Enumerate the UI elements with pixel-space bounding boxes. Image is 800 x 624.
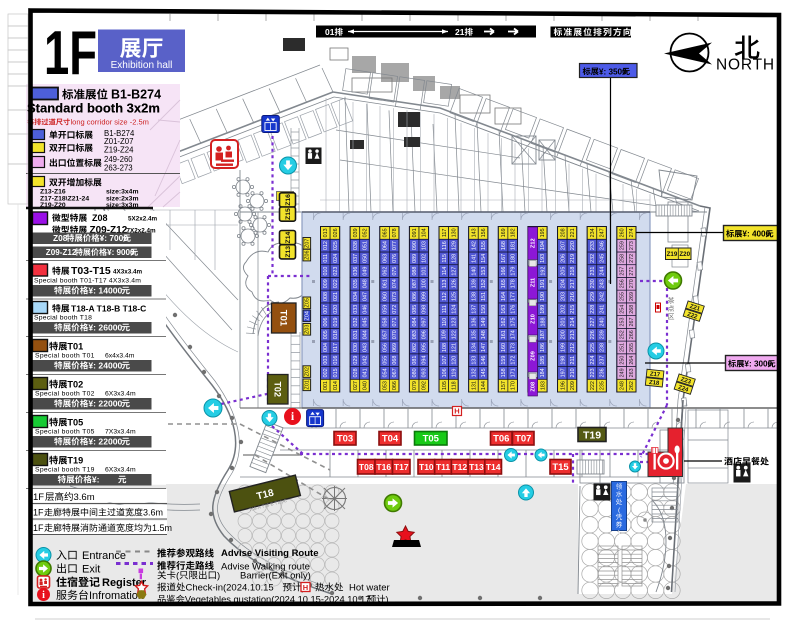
svg-text:¥: 14000: ¥: 14000 — [88, 286, 122, 296]
svg-text:026: 026 — [333, 228, 339, 237]
svg-text:056: 056 — [383, 343, 389, 352]
svg-text:246: 246 — [600, 241, 606, 250]
svg-text:161: 161 — [501, 330, 507, 339]
svg-text:224: 224 — [590, 356, 596, 365]
svg-text:119: 119 — [451, 369, 457, 378]
svg-text:228: 228 — [590, 305, 596, 314]
svg-text:096: 096 — [422, 330, 428, 339]
svg-text:¥: 22000: ¥: 22000 — [88, 399, 122, 409]
svg-text:Z19: Z19 — [667, 251, 678, 258]
svg-text:269: 269 — [629, 292, 635, 301]
svg-text:Infromation: Infromation — [89, 590, 144, 602]
svg-text:080: 080 — [412, 368, 418, 377]
svg-text:204: 204 — [560, 279, 566, 288]
svg-text:1F: 1F — [33, 523, 44, 533]
svg-text:071: 071 — [392, 317, 398, 326]
svg-text:252: 252 — [620, 330, 626, 339]
svg-text:028: 028 — [353, 368, 359, 377]
svg-text:057: 057 — [383, 330, 389, 339]
svg-text:241: 241 — [600, 305, 606, 314]
svg-text:256: 256 — [620, 279, 626, 288]
svg-text:Check-in(2024.10.15: Check-in(2024.10.15 — [186, 583, 274, 594]
svg-text:085: 085 — [412, 305, 418, 314]
svg-text:B1-B274: B1-B274 — [111, 88, 161, 102]
svg-text:045: 045 — [362, 317, 368, 326]
svg-text:168: 168 — [501, 241, 507, 250]
svg-text:123: 123 — [451, 317, 457, 326]
svg-text:035: 035 — [353, 279, 359, 288]
svg-text:068: 068 — [392, 356, 398, 365]
svg-text:138: 138 — [471, 292, 477, 301]
svg-text:090: 090 — [412, 241, 418, 250]
svg-text:029: 029 — [353, 356, 359, 365]
svg-text:207: 207 — [560, 241, 566, 250]
svg-text:144: 144 — [481, 381, 487, 390]
svg-text:225: 225 — [590, 343, 596, 352]
svg-text:249: 249 — [620, 368, 626, 377]
svg-text:149: 149 — [481, 317, 487, 326]
svg-text:172: 172 — [511, 356, 517, 365]
svg-text:065: 065 — [383, 228, 389, 237]
svg-text:076: 076 — [392, 254, 398, 263]
svg-text:274: 274 — [629, 228, 635, 237]
svg-text:262: 262 — [629, 381, 635, 390]
svg-text:191: 191 — [540, 279, 546, 288]
svg-text:188: 188 — [540, 317, 546, 326]
svg-text:271: 271 — [629, 267, 635, 276]
svg-text:178: 178 — [511, 279, 517, 288]
svg-text:231: 231 — [590, 267, 596, 276]
svg-text:21: 21 — [455, 27, 465, 37]
svg-text:1.5m: 1.5m — [152, 523, 172, 533]
svg-text:177: 177 — [511, 292, 517, 301]
svg-text:Z11: Z11 — [531, 278, 537, 287]
svg-text:190: 190 — [540, 292, 546, 301]
svg-text:216: 216 — [570, 292, 576, 301]
svg-text:131: 131 — [471, 381, 477, 390]
svg-text:044: 044 — [362, 330, 368, 339]
svg-text:Z08: Z08 — [92, 213, 108, 223]
svg-text:Z09-Z12: Z09-Z12 — [46, 248, 77, 257]
svg-text:6X3x3.4m: 6X3x3.4m — [105, 391, 136, 398]
svg-text:Z13-Z16: Z13-Z16 — [40, 189, 66, 196]
svg-text:206: 206 — [560, 254, 566, 263]
svg-text:Z16: Z16 — [285, 194, 292, 206]
svg-text:078: 078 — [392, 228, 398, 237]
svg-text:195: 195 — [540, 228, 546, 237]
svg-text:153: 153 — [481, 267, 487, 276]
svg-text:046: 046 — [362, 305, 368, 314]
svg-text:226: 226 — [590, 330, 596, 339]
svg-text:049: 049 — [362, 267, 368, 276]
svg-text:198: 198 — [560, 356, 566, 365]
svg-text:066: 066 — [392, 381, 398, 390]
svg-text:T11: T11 — [436, 462, 450, 472]
svg-text:3.6m: 3.6m — [74, 492, 95, 503]
svg-text:194: 194 — [540, 241, 546, 250]
svg-text:T15: T15 — [552, 462, 569, 473]
svg-text:053: 053 — [383, 381, 389, 390]
svg-text:T19: T19 — [67, 456, 83, 466]
svg-text:189: 189 — [540, 305, 546, 314]
svg-text:234: 234 — [590, 228, 596, 237]
svg-text:009: 009 — [323, 279, 329, 288]
svg-text:NORTH: NORTH — [716, 57, 775, 74]
svg-text:Z13: Z13 — [285, 246, 292, 258]
svg-text:094: 094 — [422, 356, 428, 365]
svg-text:253: 253 — [620, 317, 626, 326]
svg-text:185: 185 — [540, 356, 546, 365]
svg-text:5X2x2.4m: 5X2x2.4m — [128, 216, 157, 223]
svg-text:255: 255 — [620, 292, 626, 301]
svg-text:024: 024 — [333, 254, 339, 263]
svg-text:018: 018 — [333, 330, 339, 339]
svg-text:025: 025 — [333, 241, 339, 250]
svg-text:200: 200 — [560, 330, 566, 339]
svg-text:081: 081 — [412, 356, 418, 365]
svg-text:019: 019 — [333, 317, 339, 326]
svg-text:109: 109 — [442, 330, 448, 339]
svg-text:Z17: Z17 — [650, 372, 662, 379]
svg-text:030: 030 — [353, 343, 359, 352]
svg-text:203: 203 — [560, 292, 566, 301]
svg-text:268: 268 — [629, 305, 635, 314]
svg-text:121: 121 — [451, 343, 457, 352]
svg-text:Advise Visiting Route: Advise Visiting Route — [221, 548, 318, 559]
svg-text:143: 143 — [471, 228, 477, 237]
svg-text:154: 154 — [481, 254, 487, 263]
svg-text:6X3x3.4m: 6X3x3.4m — [105, 467, 136, 474]
svg-text:238: 238 — [600, 343, 606, 352]
svg-text:111: 111 — [442, 305, 448, 313]
svg-text:125: 125 — [451, 292, 457, 301]
svg-text:113: 113 — [442, 279, 448, 288]
svg-text:258: 258 — [620, 254, 626, 263]
svg-text:Hot water: Hot water — [349, 583, 390, 594]
svg-text:Special booth T18: Special booth T18 — [34, 315, 92, 322]
svg-text:223: 223 — [590, 368, 596, 377]
svg-text:239: 239 — [600, 330, 606, 339]
svg-text:004: 004 — [323, 343, 329, 352]
svg-text:077: 077 — [392, 241, 398, 250]
svg-text:032: 032 — [353, 317, 359, 326]
svg-text:218: 218 — [570, 267, 576, 276]
svg-text:183: 183 — [540, 381, 546, 390]
svg-text:058: 058 — [383, 317, 389, 326]
svg-text:003: 003 — [323, 356, 329, 365]
svg-text:088: 088 — [412, 267, 418, 276]
svg-text:075: 075 — [392, 267, 398, 276]
svg-text:243: 243 — [600, 279, 606, 288]
svg-text:156: 156 — [481, 228, 487, 237]
svg-text:136: 136 — [471, 317, 477, 326]
svg-text:): ) — [618, 530, 620, 537]
svg-text:192: 192 — [540, 267, 546, 276]
svg-text:T17: T17 — [394, 462, 409, 472]
svg-text:128: 128 — [451, 254, 457, 263]
svg-text:142: 142 — [471, 241, 477, 250]
svg-text:213: 213 — [570, 330, 576, 339]
svg-text:184: 184 — [540, 368, 546, 377]
svg-text:175: 175 — [511, 317, 517, 326]
svg-text:3.6m: 3.6m — [143, 508, 163, 518]
svg-text:101: 101 — [422, 267, 428, 276]
svg-text:266: 266 — [629, 330, 635, 339]
svg-text:248: 248 — [620, 381, 626, 390]
svg-text:157: 157 — [501, 381, 507, 390]
svg-text:106: 106 — [442, 368, 448, 377]
svg-text:Z20: Z20 — [679, 251, 690, 258]
svg-text:232: 232 — [590, 254, 596, 263]
svg-text:173: 173 — [511, 343, 517, 352]
svg-text:097: 097 — [422, 317, 428, 326]
svg-text:Z08: Z08 — [531, 382, 537, 392]
svg-text:098: 098 — [422, 305, 428, 314]
svg-text:010: 010 — [323, 267, 329, 276]
svg-text:158: 158 — [501, 368, 507, 377]
svg-text:270: 270 — [629, 279, 635, 288]
svg-text:089: 089 — [412, 254, 418, 263]
svg-text:159: 159 — [501, 356, 507, 365]
svg-text:155: 155 — [481, 241, 487, 250]
svg-text:T02: T02 — [272, 381, 282, 397]
svg-text:181: 181 — [511, 241, 517, 250]
svg-text:164: 164 — [501, 292, 507, 301]
svg-text:126: 126 — [451, 279, 457, 288]
svg-text:174: 174 — [511, 330, 517, 339]
svg-text:T05: T05 — [423, 434, 440, 445]
svg-text:i: i — [42, 590, 45, 601]
svg-text:240: 240 — [600, 317, 606, 326]
svg-text:H: H — [454, 407, 459, 416]
svg-text:T14: T14 — [486, 462, 501, 472]
svg-text:long corridor size -2.5m: long corridor size -2.5m — [71, 118, 149, 127]
svg-text:T05: T05 — [67, 418, 83, 428]
svg-text:4X3x3.4m: 4X3x3.4m — [113, 269, 142, 276]
svg-text:037: 037 — [353, 254, 359, 263]
svg-text:Z03: Z03 — [305, 325, 311, 334]
svg-text:165: 165 — [501, 279, 507, 288]
svg-text:103: 103 — [422, 241, 428, 250]
svg-text:054: 054 — [383, 368, 389, 377]
svg-text:015: 015 — [333, 368, 339, 377]
svg-text:Barrier(Exit only): Barrier(Exit only) — [240, 571, 311, 582]
svg-text:102: 102 — [422, 254, 428, 263]
svg-text:105: 105 — [442, 381, 448, 390]
svg-text:T06: T06 — [493, 434, 509, 445]
svg-text:265: 265 — [629, 343, 635, 352]
svg-text:¥: 26000: ¥: 26000 — [88, 323, 122, 333]
svg-text:220: 220 — [570, 241, 576, 250]
svg-text:112: 112 — [442, 292, 448, 301]
svg-text:060: 060 — [383, 292, 389, 301]
svg-text:T13: T13 — [469, 462, 484, 472]
svg-text:062: 062 — [383, 267, 389, 276]
svg-text:254: 254 — [620, 305, 626, 314]
svg-text:221: 221 — [570, 228, 576, 237]
svg-text:Z19-Z24: Z19-Z24 — [104, 146, 134, 155]
svg-text:T16: T16 — [376, 462, 391, 472]
svg-text:084: 084 — [412, 317, 418, 326]
svg-text:147: 147 — [481, 343, 487, 352]
svg-text:067: 067 — [392, 368, 398, 377]
svg-text:Special booth T19: Special booth T19 — [35, 467, 95, 474]
svg-text:007: 007 — [323, 305, 329, 314]
svg-text:Special booth T02: Special booth T02 — [35, 391, 95, 398]
svg-text:069: 069 — [392, 343, 398, 352]
svg-text:Z08: Z08 — [53, 233, 68, 243]
svg-text:052: 052 — [362, 228, 368, 237]
svg-text:033: 033 — [353, 305, 359, 314]
svg-text:093: 093 — [422, 368, 428, 377]
svg-text:059: 059 — [383, 305, 389, 314]
svg-text:227: 227 — [590, 317, 596, 326]
svg-text:): ) — [217, 571, 220, 582]
svg-text:T07: T07 — [515, 434, 531, 445]
svg-text:005: 005 — [323, 330, 329, 339]
svg-text:242: 242 — [600, 292, 606, 301]
svg-text:034: 034 — [353, 292, 359, 301]
svg-text:099: 099 — [422, 292, 428, 301]
svg-text:160: 160 — [501, 343, 507, 352]
svg-text:063: 063 — [383, 254, 389, 263]
svg-text:¥: 24000: ¥: 24000 — [88, 361, 122, 371]
svg-text:116: 116 — [442, 241, 448, 250]
svg-text:086: 086 — [412, 292, 418, 301]
svg-text:008: 008 — [323, 292, 329, 301]
svg-text:039: 039 — [353, 228, 359, 237]
svg-text:Special booth T05: Special booth T05 — [35, 429, 95, 436]
svg-text:021: 021 — [333, 292, 339, 301]
svg-text:T04: T04 — [382, 434, 399, 445]
svg-text:182: 182 — [511, 228, 517, 237]
svg-text:217: 217 — [570, 279, 576, 288]
svg-text:199: 199 — [560, 343, 566, 352]
svg-text:072: 072 — [392, 305, 398, 314]
svg-text:061: 061 — [383, 279, 389, 288]
svg-text:T10: T10 — [419, 462, 434, 472]
svg-text:027: 027 — [353, 381, 359, 390]
svg-text:176: 176 — [511, 305, 517, 314]
svg-text:272: 272 — [629, 254, 635, 263]
svg-text:T02: T02 — [67, 380, 83, 390]
svg-text:120: 120 — [451, 356, 457, 365]
svg-text:122: 122 — [451, 330, 457, 339]
svg-text:1F: 1F — [33, 492, 44, 503]
svg-text:Z05: Z05 — [305, 298, 311, 307]
svg-text:Z01: Z01 — [305, 380, 311, 389]
svg-text:146: 146 — [481, 356, 487, 365]
svg-text:259: 259 — [620, 241, 626, 250]
svg-text:051: 051 — [362, 241, 368, 250]
svg-text:Z04: Z04 — [305, 311, 311, 320]
svg-text:043: 043 — [362, 343, 368, 352]
svg-text:169: 169 — [501, 228, 507, 237]
svg-text:132: 132 — [471, 368, 477, 377]
svg-text:235: 235 — [600, 381, 606, 390]
svg-text:104: 104 — [422, 228, 428, 237]
svg-text:1F: 1F — [33, 508, 44, 518]
svg-text:022: 022 — [333, 279, 339, 288]
svg-text:6x4x3.4m: 6x4x3.4m — [105, 353, 135, 360]
svg-text:135: 135 — [471, 330, 477, 339]
svg-text:186: 186 — [540, 343, 546, 352]
svg-text:167: 167 — [501, 254, 507, 263]
svg-text:236: 236 — [600, 368, 606, 377]
svg-text:1F: 1F — [44, 19, 97, 88]
svg-text:091: 091 — [412, 228, 418, 237]
svg-text:031: 031 — [353, 330, 359, 339]
svg-text:141: 141 — [471, 254, 477, 263]
svg-text:Z15: Z15 — [285, 208, 292, 220]
svg-text:260: 260 — [620, 228, 626, 237]
svg-text:Special booth T01-T17 4X3x3.4m: Special booth T01-T17 4X3x3.4m — [34, 278, 141, 285]
svg-text:092: 092 — [422, 381, 428, 390]
svg-text:201: 201 — [560, 317, 566, 326]
svg-text:233: 233 — [590, 241, 596, 250]
svg-text:150: 150 — [481, 305, 487, 314]
svg-text:Z14: Z14 — [285, 232, 292, 244]
svg-text:050: 050 — [362, 254, 368, 263]
svg-text:133: 133 — [471, 356, 477, 365]
svg-text:Standard booth 3x2m: Standard booth 3x2m — [27, 101, 160, 116]
svg-text:Z02: Z02 — [305, 367, 311, 376]
svg-text:T18-A T18-B T18-C: T18-A T18-B T18-C — [71, 304, 146, 314]
svg-text:01: 01 — [325, 27, 335, 37]
svg-text:196: 196 — [560, 381, 566, 390]
svg-text:229: 229 — [590, 292, 596, 301]
svg-text:042: 042 — [362, 356, 368, 365]
svg-text:H: H — [303, 583, 308, 592]
svg-text:T01: T01 — [67, 342, 83, 352]
svg-text:151: 151 — [481, 292, 487, 301]
svg-text:095: 095 — [422, 343, 428, 352]
svg-text:187: 187 — [540, 330, 546, 339]
svg-text:273: 273 — [629, 241, 635, 250]
svg-text:T01: T01 — [277, 310, 288, 327]
svg-text:205: 205 — [560, 267, 566, 276]
svg-text:047: 047 — [362, 292, 368, 301]
svg-text:T03-T15: T03-T15 — [71, 265, 111, 277]
svg-text:230: 230 — [590, 279, 596, 288]
svg-text:215: 215 — [570, 305, 576, 314]
svg-text:263: 263 — [629, 368, 635, 377]
svg-text:171: 171 — [511, 368, 517, 377]
svg-text:214: 214 — [570, 317, 576, 326]
svg-text:001: 001 — [323, 381, 329, 390]
svg-text:118: 118 — [451, 381, 457, 390]
svg-text:T12: T12 — [452, 462, 467, 472]
svg-text:250: 250 — [620, 356, 626, 365]
svg-text:210: 210 — [570, 368, 576, 377]
svg-text:073: 073 — [392, 292, 398, 301]
svg-text:¥: 9000: ¥: 9000 — [107, 248, 135, 257]
svg-text:Z09: Z09 — [531, 351, 537, 361]
svg-text:139: 139 — [471, 279, 477, 288]
svg-text:048: 048 — [362, 279, 368, 288]
svg-text:041: 041 — [362, 368, 368, 377]
svg-text:162: 162 — [501, 317, 507, 326]
svg-text:size:3x4m: size:3x4m — [106, 189, 139, 196]
svg-text:Exit: Exit — [82, 564, 100, 576]
svg-text:011: 011 — [323, 254, 329, 263]
svg-text:134: 134 — [471, 343, 477, 352]
svg-text:202: 202 — [560, 305, 566, 314]
svg-text:100: 100 — [422, 279, 428, 288]
svg-text:145: 145 — [481, 368, 487, 377]
svg-text:244: 244 — [600, 267, 606, 276]
svg-text:108: 108 — [442, 343, 448, 352]
